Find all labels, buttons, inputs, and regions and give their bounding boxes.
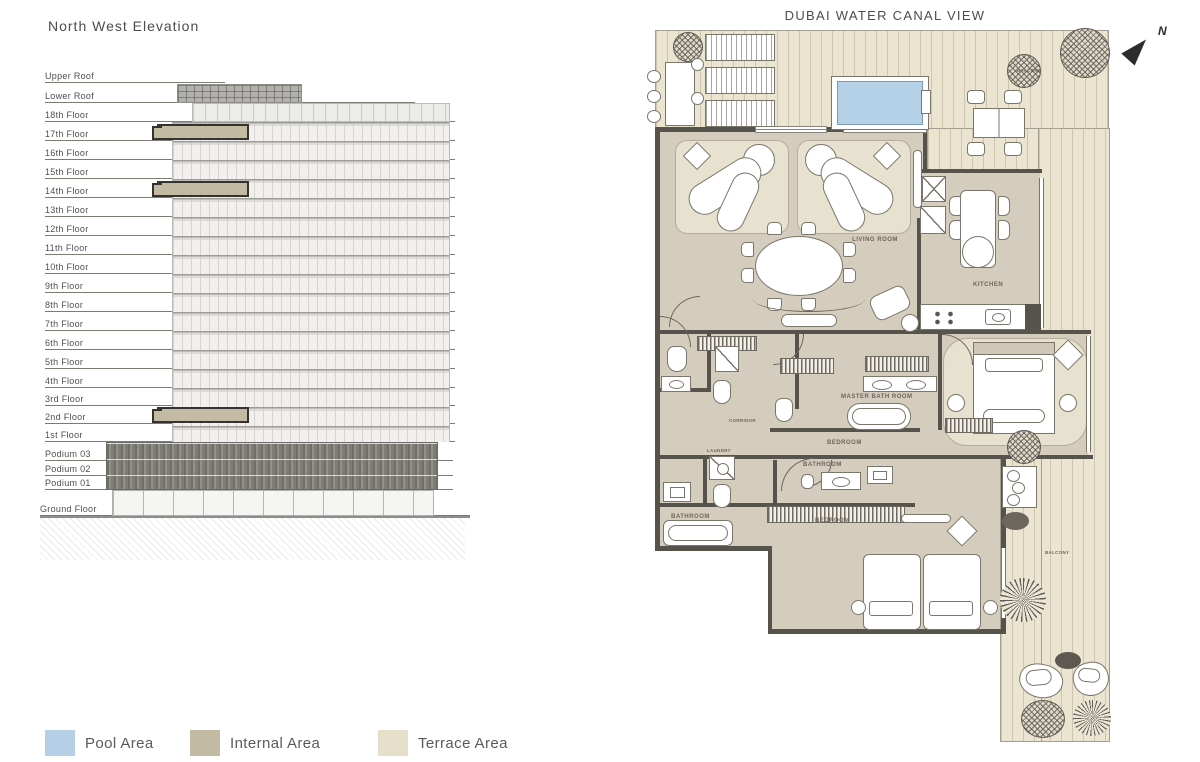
master-bedroom-label: BEDROOM (827, 440, 862, 446)
outdoor-table (973, 108, 1025, 138)
floor-label: 7th Floor (45, 319, 83, 329)
floor-plan-title: DUBAI WATER CANAL VIEW (655, 8, 1115, 23)
kitchen-island-round (962, 236, 994, 268)
floor-label: Lower Roof (45, 91, 94, 101)
lounge-cushion (1078, 667, 1101, 683)
dining-chair (843, 242, 856, 257)
floor-label: 15th Floor (45, 167, 89, 177)
floor-label: 13th Floor (45, 205, 89, 215)
dining-chair (767, 222, 782, 235)
sink-basin (832, 477, 850, 487)
balcony-seat (1002, 466, 1037, 508)
north-arrow-icon (1121, 33, 1152, 65)
floor-label: 2nd Floor (45, 412, 86, 422)
highlighted-unit-14th-floor (157, 181, 249, 197)
master-bathroom-label: MASTER BATH ROOM (841, 394, 913, 400)
floor-label: 11th Floor (45, 243, 88, 253)
master-bedroom-window (1086, 336, 1091, 452)
dining-chair (741, 268, 754, 283)
wardrobe (780, 358, 834, 374)
legend-label: Internal Area (230, 735, 320, 752)
floor-label: 14th Floor (45, 186, 89, 196)
plant-spiky-icon (1000, 578, 1046, 622)
pool (837, 81, 923, 125)
floor-label: 10th Floor (45, 262, 89, 272)
bedroom-label: BEDROOM (815, 518, 850, 524)
kitchen-chair (998, 220, 1010, 240)
floor-label: Podium 01 (45, 478, 91, 488)
nightstand (1059, 394, 1077, 412)
twin-bed (923, 554, 981, 630)
bed-headboard (974, 343, 1054, 355)
toilet (775, 398, 793, 422)
side-table (691, 58, 704, 71)
legend-item-terrace: Terrace Area (378, 730, 508, 756)
washer-drum (717, 463, 729, 475)
wardrobe (945, 418, 993, 433)
legend-label: Terrace Area (418, 735, 508, 752)
plate (1007, 470, 1020, 482)
mirror-cabinet (867, 466, 893, 484)
wall (703, 457, 707, 505)
stove-icon (931, 310, 957, 326)
toilet (713, 380, 731, 404)
floor-label: 18th Floor (45, 110, 89, 120)
building-podium (106, 442, 438, 490)
vanity-sink (663, 482, 691, 502)
bed-pillow (929, 601, 973, 616)
floor-label: Podium 03 (45, 449, 91, 459)
sink-basin (872, 380, 892, 390)
pool-area-swatch (45, 730, 75, 756)
floor-label: 3rd Floor (45, 394, 84, 404)
unit-notch (152, 126, 162, 140)
floor-label: 16th Floor (45, 148, 89, 158)
bench (781, 314, 837, 327)
living-room-label: LIVING ROOM (851, 236, 899, 244)
plate (1012, 482, 1025, 494)
unit-notch (152, 183, 162, 197)
floor-label: 8th Floor (45, 300, 83, 310)
shrub-icon (647, 90, 661, 103)
washing-machine (709, 456, 735, 480)
bathtub (663, 520, 733, 546)
bathroom-middle-label: BATHROOM (803, 462, 842, 468)
bathtub-inner (852, 408, 906, 425)
outdoor-chair (1004, 90, 1022, 104)
laundry-label: LAUNDRY (707, 448, 731, 453)
building-ground-floor-glazing (112, 490, 434, 516)
building-roof-band (192, 103, 450, 122)
bathtub (847, 403, 911, 430)
nightstand (983, 600, 998, 615)
wall (655, 330, 1091, 334)
legend-item-pool: Pool Area (45, 730, 154, 756)
floor-label: 12th Floor (45, 224, 89, 234)
shower (715, 346, 739, 372)
floor-plan: BALCONY LIVING ROOM (655, 28, 1115, 748)
plate (1007, 494, 1020, 506)
toilet (667, 346, 687, 372)
counter-end (1025, 304, 1041, 330)
balcony-right-label: BALCONY (1045, 550, 1069, 555)
balcony-top-label: BALCONY (1017, 68, 1041, 73)
vanity-sink (661, 376, 691, 392)
floor-label: Ground Floor (40, 504, 97, 514)
terrace-area-swatch (378, 730, 408, 756)
dining-chair (741, 242, 754, 257)
toilet (713, 484, 731, 508)
shrub-icon (647, 70, 661, 83)
bed-pillow (869, 601, 913, 616)
shrub-icon (647, 110, 661, 123)
floor-label: 17th Floor (45, 129, 89, 139)
curved-bench-line (753, 286, 865, 312)
mirror-inner (873, 471, 887, 480)
wall (655, 546, 771, 551)
floor-label: 5th Floor (45, 357, 83, 367)
planter-box (665, 62, 695, 126)
console (913, 150, 922, 208)
unit-notch (152, 409, 162, 423)
floor-label: 1st Floor (45, 430, 83, 440)
bathtub-inner (668, 525, 728, 541)
sliding-door (755, 126, 827, 133)
wall (920, 169, 1042, 173)
double-vanity (863, 376, 937, 392)
wall (773, 460, 777, 507)
wardrobe (865, 356, 929, 372)
pedestal-sink (801, 474, 814, 489)
tree-icon (1060, 28, 1110, 78)
wall (768, 546, 772, 634)
pool-step (921, 90, 931, 114)
sun-lounger (705, 67, 775, 94)
bench (901, 514, 951, 523)
plant-icon (1021, 700, 1065, 738)
outdoor-chair (967, 90, 985, 104)
lounge-cushion (1025, 668, 1053, 687)
cabinet (920, 206, 946, 234)
ottoman (901, 314, 919, 332)
building-tower-facade (172, 122, 450, 442)
floor-label: 9th Floor (45, 281, 83, 291)
highlighted-unit-17th-floor (157, 124, 249, 140)
highlighted-unit-2nd-floor (157, 407, 249, 423)
dining-chair (843, 268, 856, 283)
nightstand (851, 600, 866, 615)
floor-label: Upper Roof (45, 71, 94, 81)
twin-bed (863, 554, 921, 630)
wall (923, 127, 927, 173)
floor-label: 4th Floor (45, 376, 83, 386)
outdoor-chair (1004, 142, 1022, 156)
sink-basin (906, 380, 926, 390)
legend-item-internal: Internal Area (190, 730, 320, 756)
building-roof-mechanical (177, 84, 302, 103)
plant-icon (1007, 430, 1041, 464)
kitchen-sink (985, 309, 1011, 325)
kitchen-label: KITCHEN (973, 282, 1003, 288)
corridor-label: CORRIDOR (729, 418, 756, 423)
kitchen-chair (998, 196, 1010, 216)
nightstand (947, 394, 965, 412)
vanity-sink (821, 472, 861, 490)
floor-label: Podium 02 (45, 464, 91, 474)
plant-spiky-icon (1073, 700, 1111, 736)
sink-basin (669, 380, 684, 389)
side-table (691, 92, 704, 105)
internal-area-swatch (190, 730, 220, 756)
outdoor-chair (967, 142, 985, 156)
sun-lounger (705, 100, 775, 127)
ground-hatch (40, 518, 465, 560)
page: North West Elevation Upper Roof Lower Ro… (0, 0, 1200, 762)
plant-dark-icon (1002, 512, 1029, 530)
sink-basin (670, 487, 685, 498)
bed-pillow (985, 358, 1043, 372)
elevation-title: North West Elevation (48, 18, 199, 34)
legend-label: Pool Area (85, 735, 154, 752)
sun-lounger (705, 34, 775, 61)
cabinet (922, 176, 946, 202)
floor-label: 6th Floor (45, 338, 83, 348)
sink-basin (992, 313, 1005, 322)
dining-chair (801, 222, 816, 235)
north-label: N (1158, 24, 1167, 38)
floor-label-row: Upper Roof (45, 71, 225, 83)
